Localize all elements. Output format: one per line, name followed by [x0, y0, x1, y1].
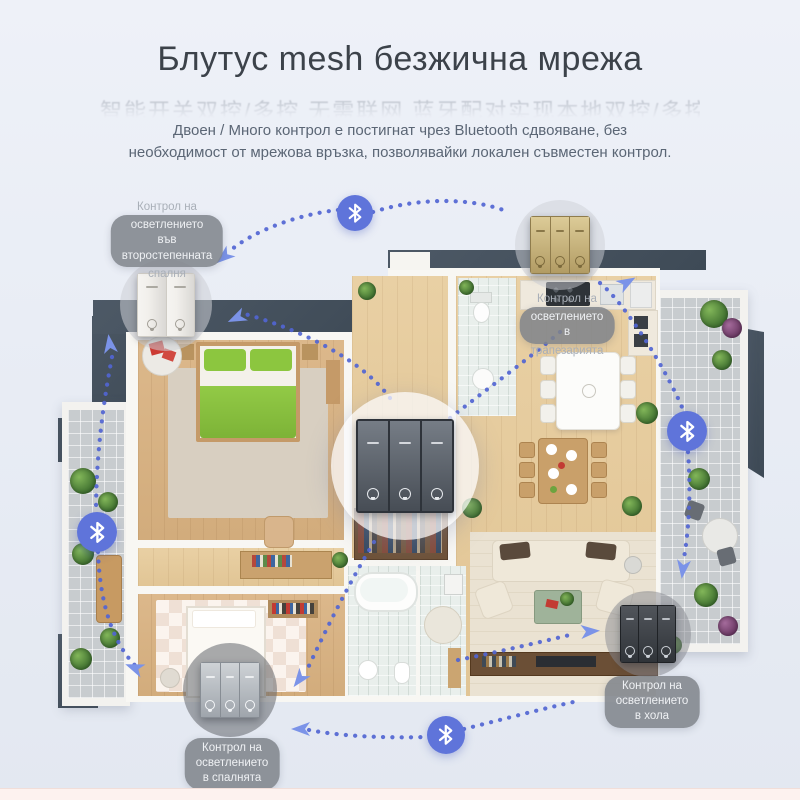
- speaker: [624, 556, 642, 574]
- shoes: [358, 513, 442, 553]
- food: [550, 486, 557, 493]
- balcony-plant: [722, 318, 742, 338]
- green-blanket: [200, 386, 296, 438]
- fridge: [630, 282, 652, 308]
- balcony-plant: [100, 628, 120, 648]
- plate: [566, 484, 577, 495]
- balcony-plant: [694, 583, 718, 607]
- plate: [566, 450, 577, 461]
- chair: [540, 404, 556, 423]
- tv: [536, 656, 596, 667]
- bathtub-inner: [360, 578, 408, 602]
- plant: [622, 496, 642, 516]
- wash-basin: [472, 368, 494, 390]
- armchair: [264, 516, 294, 548]
- stove: [546, 282, 590, 306]
- wall: [390, 252, 430, 270]
- balcony-plant: [70, 468, 96, 494]
- balcony-plant: [72, 543, 94, 565]
- food: [558, 462, 565, 469]
- chair: [519, 462, 535, 478]
- plant: [560, 592, 574, 606]
- balcony-plant: [70, 648, 92, 670]
- sofa-cushion: [499, 541, 531, 560]
- sofa-cushion: [585, 541, 617, 560]
- chair: [620, 356, 636, 375]
- balcony-plant: [688, 468, 710, 490]
- balcony-plant: [718, 616, 738, 636]
- plant: [636, 402, 658, 424]
- balcony-plant: [98, 492, 118, 512]
- books: [272, 603, 314, 614]
- green-pillow: [204, 349, 246, 371]
- decor: [482, 656, 516, 667]
- plate: [548, 468, 559, 479]
- coffee-table: [534, 590, 582, 624]
- chair: [591, 482, 607, 498]
- chair: [540, 356, 556, 375]
- chair: [620, 380, 636, 399]
- lounger: [96, 555, 122, 623]
- plant: [459, 280, 474, 295]
- green-pillow: [250, 349, 292, 371]
- roof-slate: [388, 250, 706, 270]
- chair: [540, 380, 556, 399]
- pedestal-sink: [358, 660, 378, 680]
- apartment-floorplan: [0, 0, 800, 800]
- centerpiece: [582, 384, 596, 398]
- chair: [519, 442, 535, 458]
- nightstand: [302, 344, 318, 360]
- books: [252, 555, 292, 567]
- toilet: [394, 662, 410, 684]
- plant: [358, 282, 376, 300]
- plant: [462, 498, 482, 518]
- chair: [519, 482, 535, 498]
- toilet-bowl: [473, 302, 490, 323]
- oven: [634, 334, 648, 347]
- washing-machine: [444, 574, 463, 595]
- balcony-plant: [664, 636, 682, 654]
- pouf: [160, 668, 180, 688]
- chair: [591, 462, 607, 478]
- chair: [591, 442, 607, 458]
- page: Блутус mesh безжична мрежа 智能开关双控/多控 无需联…: [0, 0, 800, 800]
- kitchen-sink: [600, 284, 624, 305]
- white-pillow: [192, 610, 256, 628]
- vanity: [448, 648, 461, 688]
- chair: [620, 404, 636, 423]
- dresser: [326, 360, 340, 404]
- plant: [332, 552, 348, 568]
- roof-slate: [93, 300, 388, 334]
- plate: [546, 444, 557, 455]
- round-rug: [424, 606, 462, 644]
- bottom-strip: [0, 788, 800, 800]
- balcony-plant: [712, 350, 732, 370]
- oven: [634, 316, 648, 329]
